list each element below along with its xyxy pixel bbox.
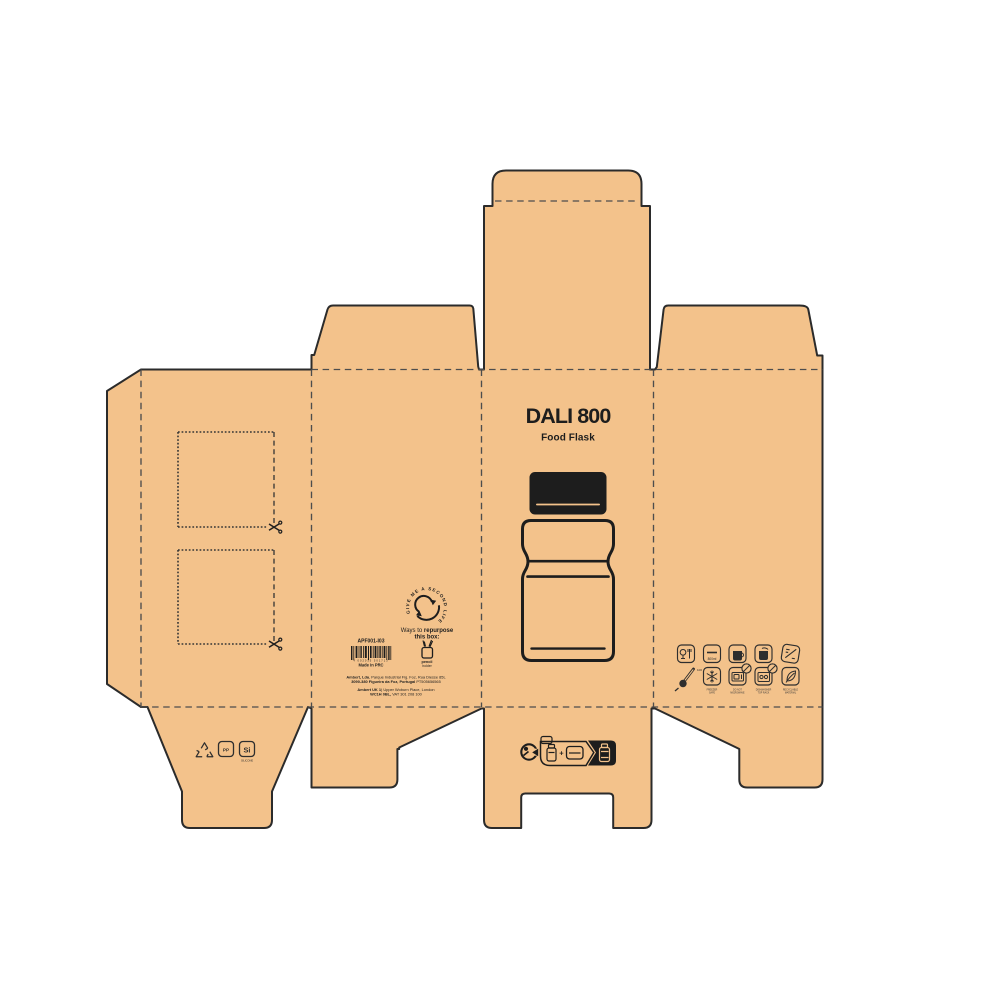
svg-text:800ml: 800ml (708, 657, 717, 661)
svg-text:DISHWASHER: DISHWASHER (756, 689, 772, 692)
svg-text:SILICONE: SILICONE (241, 759, 253, 763)
svg-text:100: 100 (697, 668, 702, 672)
svg-text:Si: Si (244, 746, 251, 755)
svg-text:Ways to repurpose: Ways to repurpose (401, 628, 454, 634)
svg-text:this box:: this box: (415, 634, 440, 640)
svg-text:RECYCLABLE: RECYCLABLE (783, 689, 799, 692)
svg-text:TOP RACK: TOP RACK (758, 692, 770, 695)
svg-text:WC1H 0BL, VAT 301 208 100: WC1H 0BL, VAT 301 208 100 (370, 692, 423, 697)
svg-text:MATERIAL: MATERIAL (785, 692, 797, 695)
svg-text:FREEZER: FREEZER (707, 690, 718, 692)
svg-text:PP: PP (223, 748, 229, 753)
svg-text:DALI 800: DALI 800 (526, 404, 612, 428)
svg-text:MICROWAVE: MICROWAVE (730, 692, 745, 695)
svg-text:holder: holder (422, 664, 432, 668)
svg-text:APF001-I03: APF001-I03 (358, 639, 385, 645)
svg-text:Made in PRC: Made in PRC (358, 662, 383, 667)
svg-text:Food Flask: Food Flask (541, 433, 595, 444)
svg-text:3090-380 Figueira da Foz, Port: 3090-380 Figueira da Foz, Portugal PT505… (351, 679, 441, 684)
svg-text:DO NOT: DO NOT (733, 690, 743, 692)
svg-text:SAFE: SAFE (709, 692, 715, 695)
svg-text:+: + (559, 749, 564, 758)
